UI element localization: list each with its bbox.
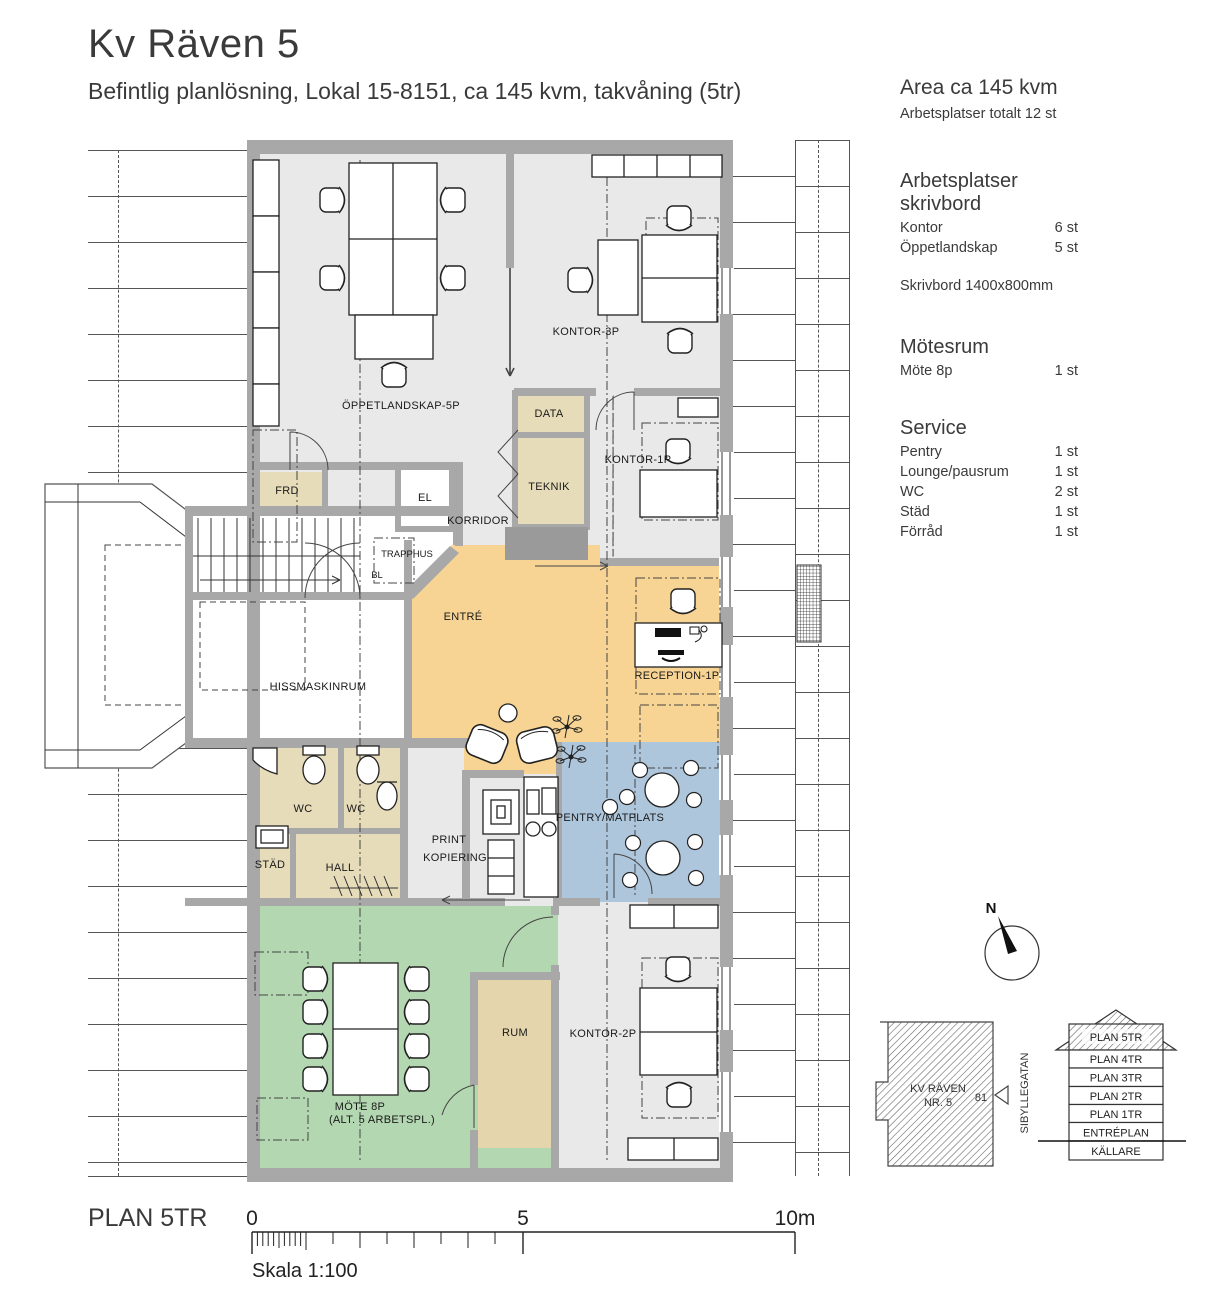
room-hissmaskinrum bbox=[193, 598, 404, 738]
label-el: EL bbox=[418, 492, 432, 504]
label-stad: STÄD bbox=[255, 859, 286, 871]
scale-tick-10: 10m bbox=[775, 1207, 816, 1230]
label-hissmaskinrum: HISSMASKINRUM bbox=[270, 681, 367, 693]
label-hall: HALL bbox=[326, 862, 355, 874]
north-label: N bbox=[986, 900, 997, 917]
scale-tick-5: 5 bbox=[517, 1207, 529, 1230]
room-rum bbox=[478, 980, 552, 1148]
label-frd: FRD bbox=[275, 485, 299, 497]
section-diagram: PLAN 5TR PLAN 4TR PLAN 3TR PLAN 2TR PLAN… bbox=[1038, 1010, 1186, 1160]
label-mote1: MÖTE 8P bbox=[335, 1101, 385, 1113]
label-teknik: TEKNIK bbox=[528, 481, 570, 493]
section-level-2tr: PLAN 2TR bbox=[1090, 1091, 1143, 1103]
label-data: DATA bbox=[535, 408, 564, 420]
section-level-4tr: PLAN 4TR bbox=[1090, 1054, 1143, 1066]
north-arrow: N bbox=[985, 900, 1039, 980]
label-entre: ENTRÉ bbox=[444, 610, 483, 623]
site-plan: KV RÄVEN NR. 5 81 SIBYLLEGATAN bbox=[876, 1022, 1031, 1166]
section-level-3tr: PLAN 3TR bbox=[1090, 1073, 1143, 1085]
site-name-2: NR. 5 bbox=[924, 1097, 952, 1109]
page: Kv Räven 5 Befintlig planlösning, Lokal … bbox=[0, 0, 1213, 1299]
section-level-entreplan: ENTRÉPLAN bbox=[1083, 1127, 1149, 1140]
label-trapphus: TRAPPHUS bbox=[381, 549, 433, 560]
label-wc2: WC bbox=[347, 803, 366, 815]
label-print2: KOPIERING bbox=[423, 852, 487, 864]
label-pentry: PENTRY/MATPLATS bbox=[556, 812, 664, 824]
scale-tick-0: 0 bbox=[246, 1207, 258, 1230]
label-mote2: (ALT. 5 ARBETSPL.) bbox=[329, 1114, 435, 1126]
site-name-1: KV RÄVEN bbox=[910, 1083, 966, 1095]
site-number: 81 bbox=[975, 1092, 987, 1104]
section-level-kallare: KÄLLARE bbox=[1091, 1146, 1141, 1158]
balcony-grate bbox=[797, 565, 821, 642]
label-kontor1p: KONTOR-1P bbox=[605, 454, 672, 466]
label-wc1: WC bbox=[294, 803, 313, 815]
label-print1: PRINT bbox=[432, 834, 467, 846]
label-korridor: KORRIDOR bbox=[447, 515, 509, 527]
label-reception: RECEPTION-1P bbox=[635, 670, 720, 682]
label-bl: BL bbox=[371, 570, 383, 581]
label-kontor3p: KONTOR-3P bbox=[553, 326, 620, 338]
label-rum: RUM bbox=[502, 1027, 528, 1039]
label-kontor2p: KONTOR-2P bbox=[570, 1028, 637, 1040]
section-level-5tr: PLAN 5TR bbox=[1090, 1032, 1143, 1044]
floor-plan-drawing: ÖPPETLANDSKAP-5P KONTOR-3P DATA TEKNIK K… bbox=[0, 0, 1213, 1299]
scale-bar: 0 5 10m bbox=[246, 1207, 815, 1254]
desk-cluster bbox=[349, 163, 437, 359]
site-entry-arrow bbox=[995, 1086, 1008, 1104]
section-level-1tr: PLAN 1TR bbox=[1090, 1109, 1143, 1121]
label-oppetlandskap: ÖPPETLANDSKAP-5P bbox=[342, 400, 460, 412]
site-street: SIBYLLEGATAN bbox=[1019, 1052, 1031, 1133]
